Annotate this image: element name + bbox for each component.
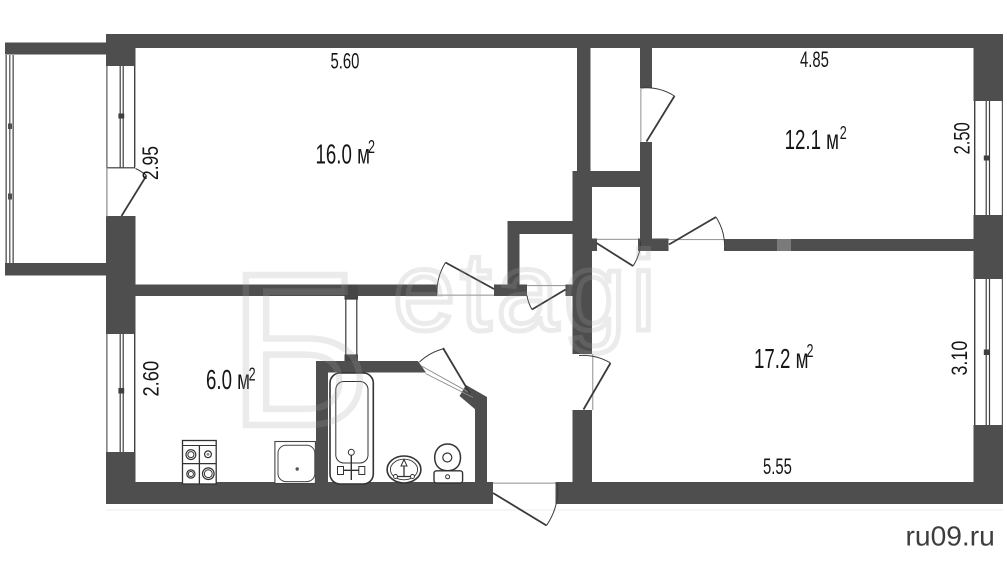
svg-text:17.2 м: 17.2 м (754, 343, 808, 373)
svg-text:5.55: 5.55 (763, 454, 792, 479)
svg-text:Б: Б (228, 229, 371, 472)
svg-text:5.60: 5.60 (331, 49, 360, 74)
svg-text:4.85: 4.85 (800, 47, 829, 72)
svg-text:3.10: 3.10 (948, 341, 972, 376)
svg-text:2: 2 (368, 138, 375, 158)
svg-text:2: 2 (807, 342, 814, 362)
svg-text:16.0 м: 16.0 м (316, 139, 370, 169)
svg-text:2.60: 2.60 (140, 361, 164, 397)
svg-text:2.95: 2.95 (139, 146, 163, 180)
svg-text:2: 2 (840, 124, 847, 144)
svg-text:12.1 м: 12.1 м (785, 124, 839, 154)
svg-text:2.50: 2.50 (950, 122, 975, 154)
svg-text:etagi: etagi (393, 229, 661, 354)
svg-text:ru09.ru: ru09.ru (906, 520, 995, 552)
